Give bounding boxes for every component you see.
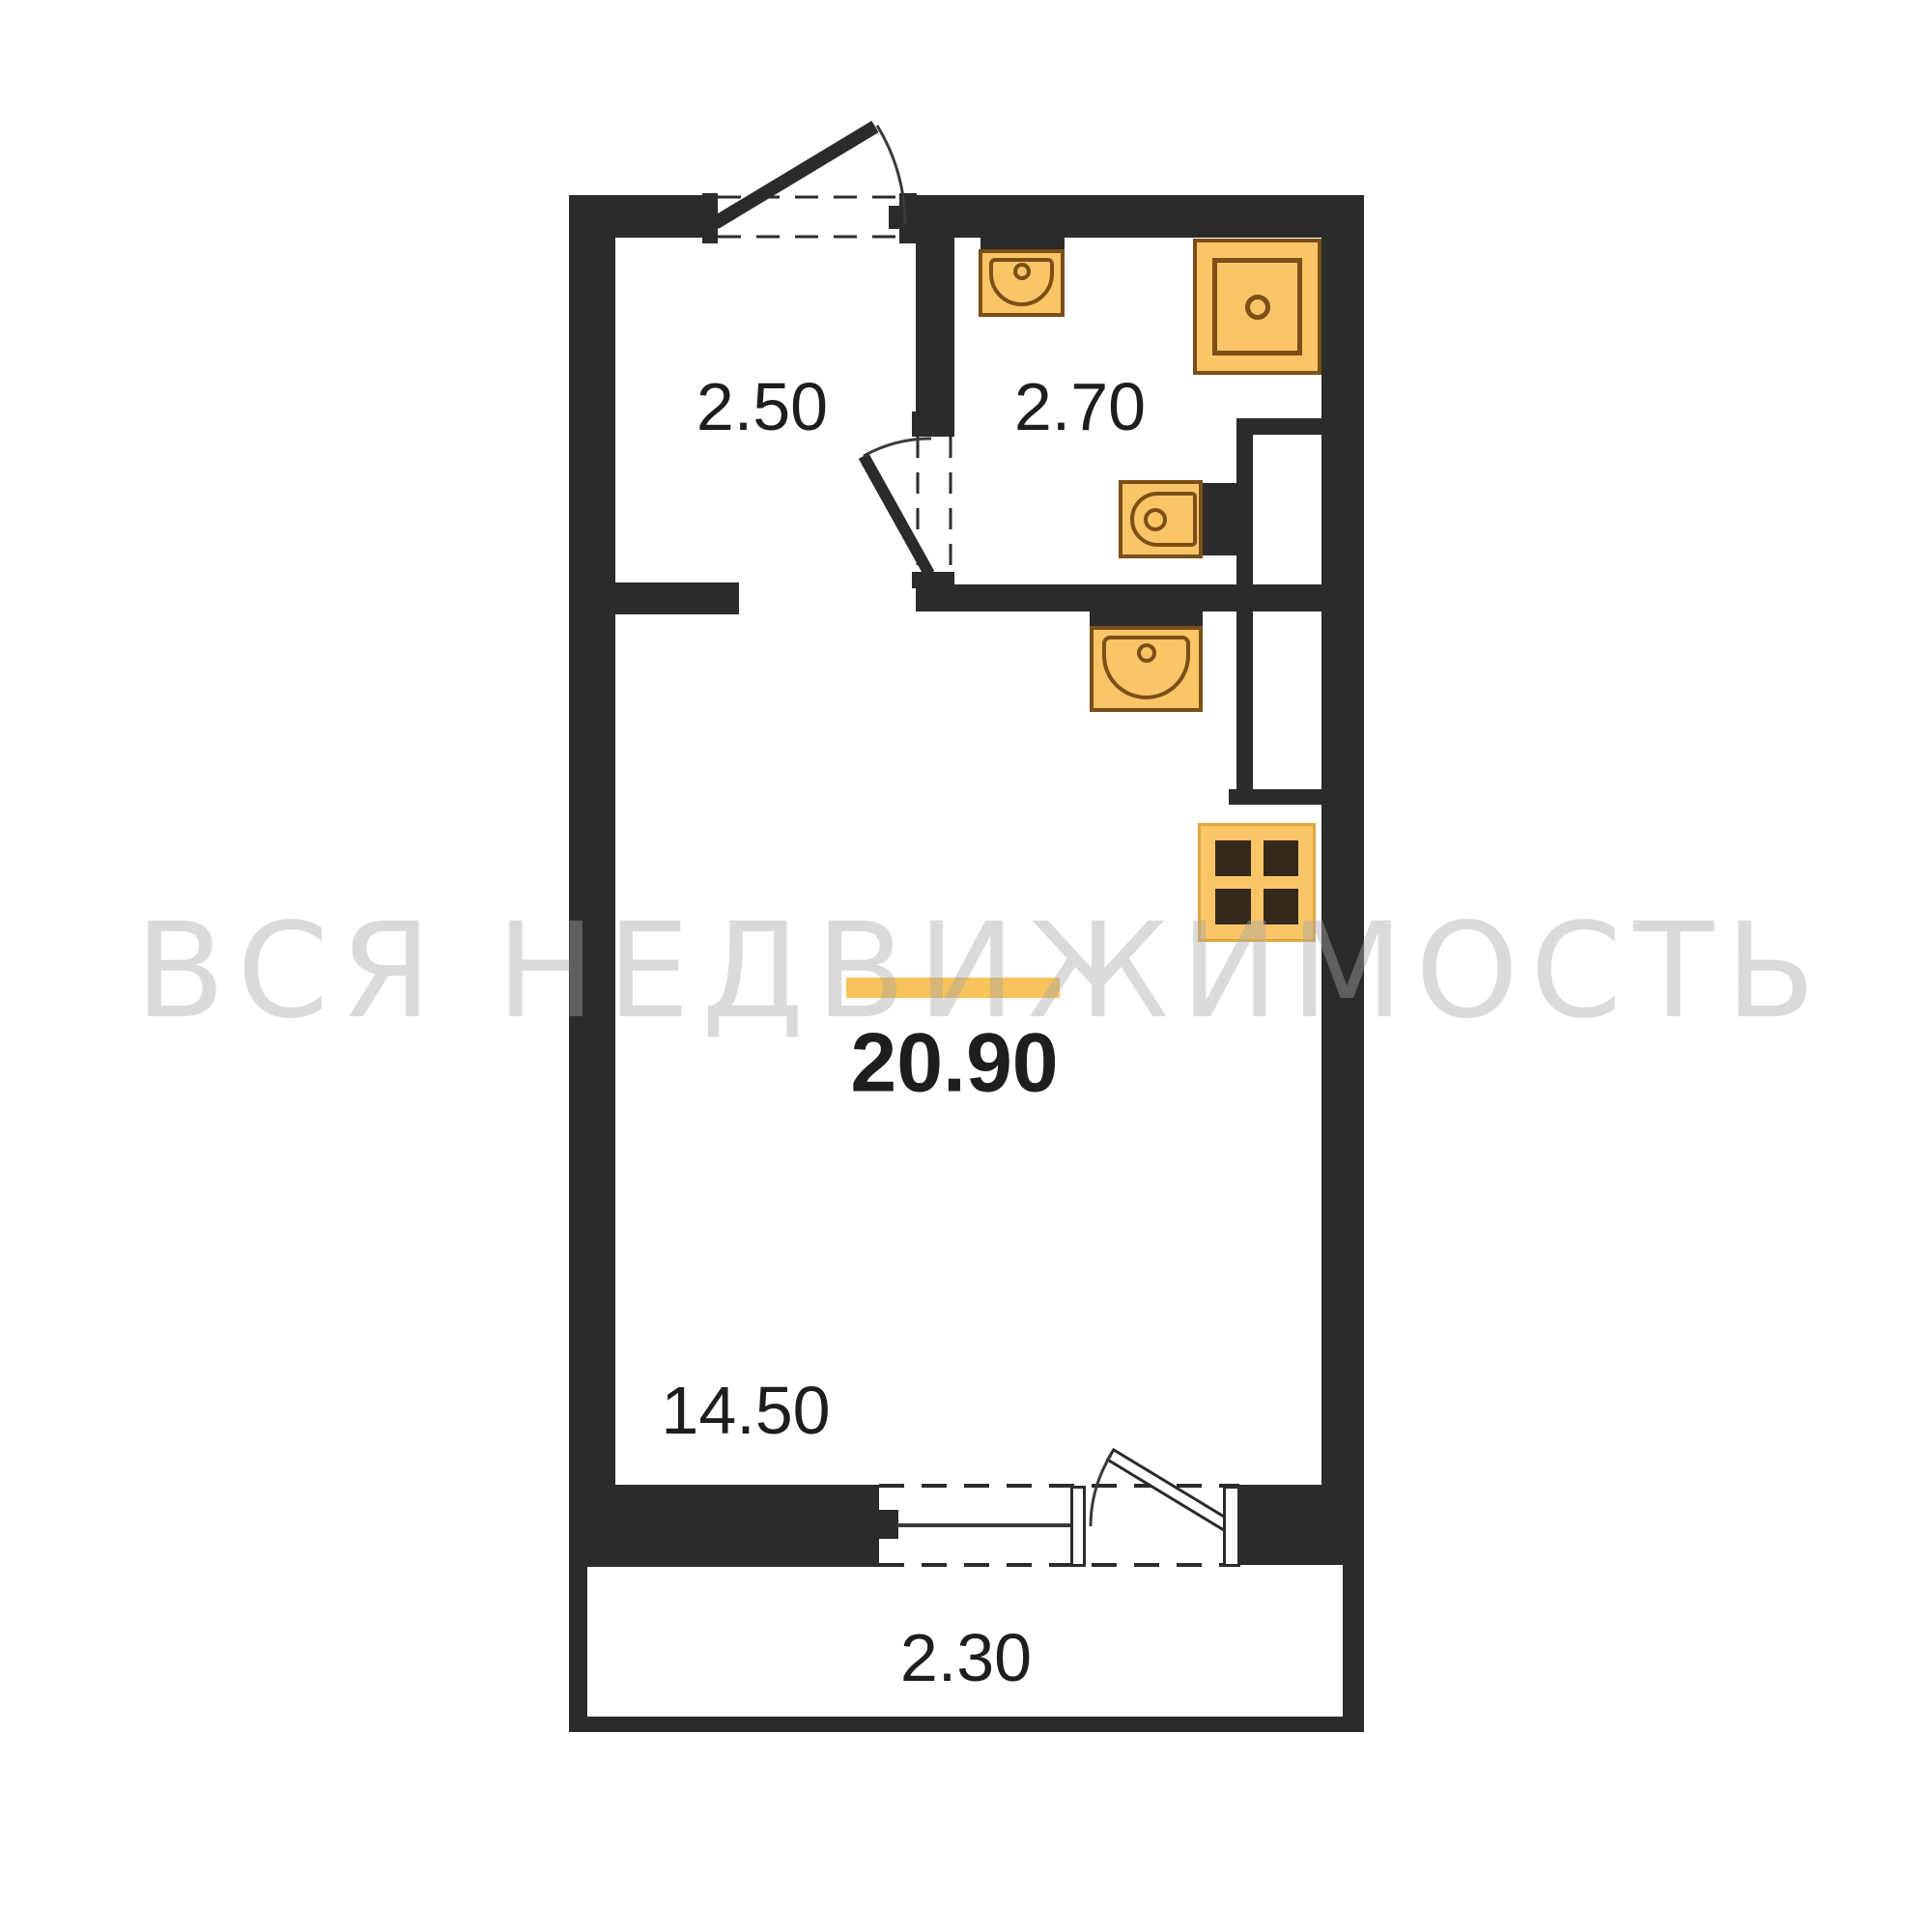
balcony-door-frame [1223, 1486, 1240, 1567]
window-frame-right [1070, 1486, 1086, 1567]
area-label-living-room: 14.50 [661, 1372, 830, 1449]
bathroom-door-leaf [864, 456, 929, 574]
balcony-door-leaf [1108, 1450, 1233, 1531]
entrance-door-leaf [715, 127, 875, 223]
area-label-hallway: 2.50 [696, 368, 828, 445]
total-area-label: 20.90 [850, 1016, 1058, 1112]
bathroom-door-swing-arc [864, 439, 931, 456]
entrance-door-swing-arc [877, 126, 905, 224]
area-label-bathroom: 2.70 [1014, 368, 1146, 445]
area-label-balcony: 2.30 [900, 1619, 1032, 1696]
balcony-door-swing-arc [1091, 1455, 1111, 1526]
floor-plan: 2.50 2.70 14.50 20.90 2.30 ВСЯ НЕДВИЖИМО… [0, 0, 1932, 1932]
